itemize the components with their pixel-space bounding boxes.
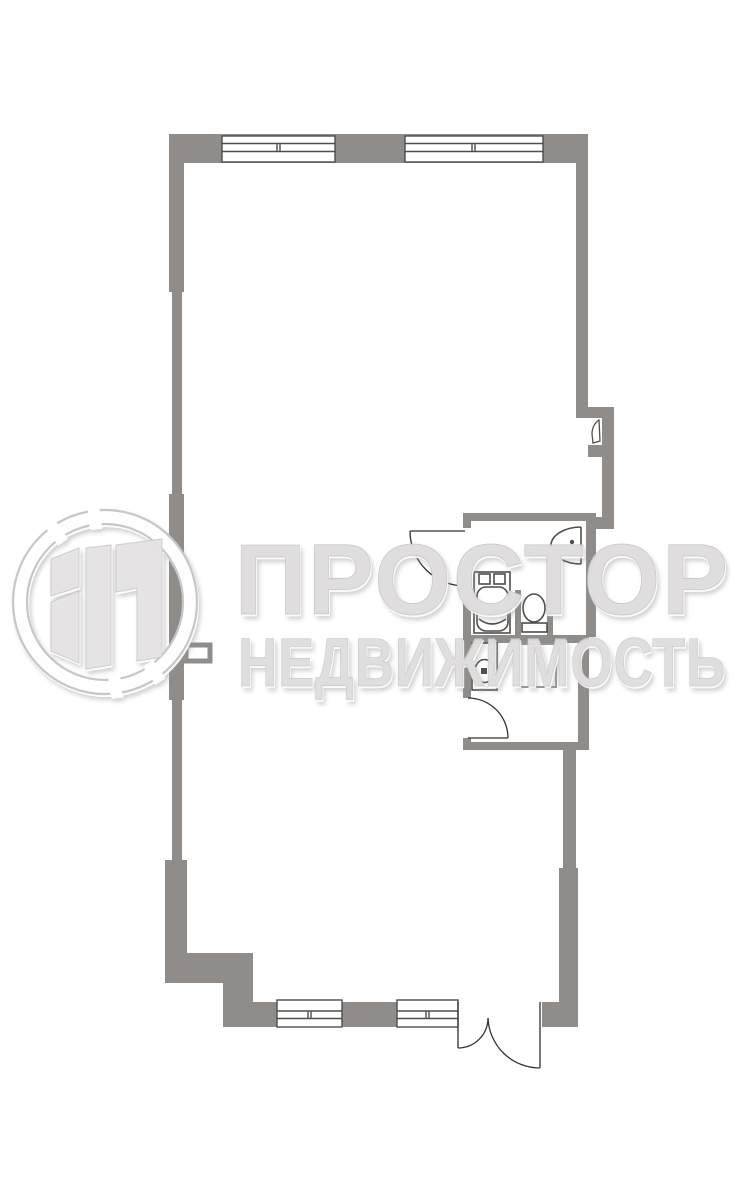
wall-bath-bottom: [465, 742, 578, 750]
window-top-right: [405, 136, 543, 162]
wall-right-step: [576, 407, 614, 418]
window-bottom-left: [277, 1000, 342, 1027]
wc-door: [468, 698, 508, 738]
wall-step-vertical: [223, 983, 253, 1002]
door-arc-icon: [488, 1018, 540, 1068]
door-arc-icon: [468, 698, 508, 738]
wall-left-upper-thick: [169, 163, 184, 292]
window-bottom-right: [397, 1000, 458, 1027]
radiator-icon: [186, 645, 210, 661]
floor-plan-page: ПРОСТОР НЕДВИЖИМОСТЬ: [0, 0, 756, 1200]
wall-niche-sill: [588, 445, 614, 457]
watermark: ПРОСТОР НЕДВИЖИМОСТЬ: [13, 507, 730, 701]
wall-right-upper: [576, 163, 588, 407]
wall-left-thin-2: [172, 700, 182, 860]
wall-left-thin-1: [172, 292, 182, 494]
wall-bottom-right-corner: [542, 1002, 578, 1027]
wall-step-horizontal: [165, 953, 253, 983]
window-top-left: [222, 136, 335, 162]
casement-icon: [592, 420, 600, 443]
watermark-line1: ПРОСТОР: [235, 524, 730, 636]
wall-right-lower-thick: [559, 868, 578, 1002]
wall-right-outer: [602, 418, 614, 529]
logo-monogram: [51, 539, 162, 669]
wall-bath-top: [465, 513, 596, 521]
wall-right-thin: [563, 750, 576, 868]
wall-left-lower-thick: [165, 860, 187, 953]
watermark-line2: НЕДВИЖИМОСТЬ: [238, 624, 726, 701]
radiator: [186, 645, 210, 661]
floor-plan-svg: ПРОСТОР НЕДВИЖИМОСТЬ: [0, 0, 756, 1200]
entry-double-door: [458, 1002, 540, 1068]
door-arc-icon: [458, 1018, 488, 1048]
